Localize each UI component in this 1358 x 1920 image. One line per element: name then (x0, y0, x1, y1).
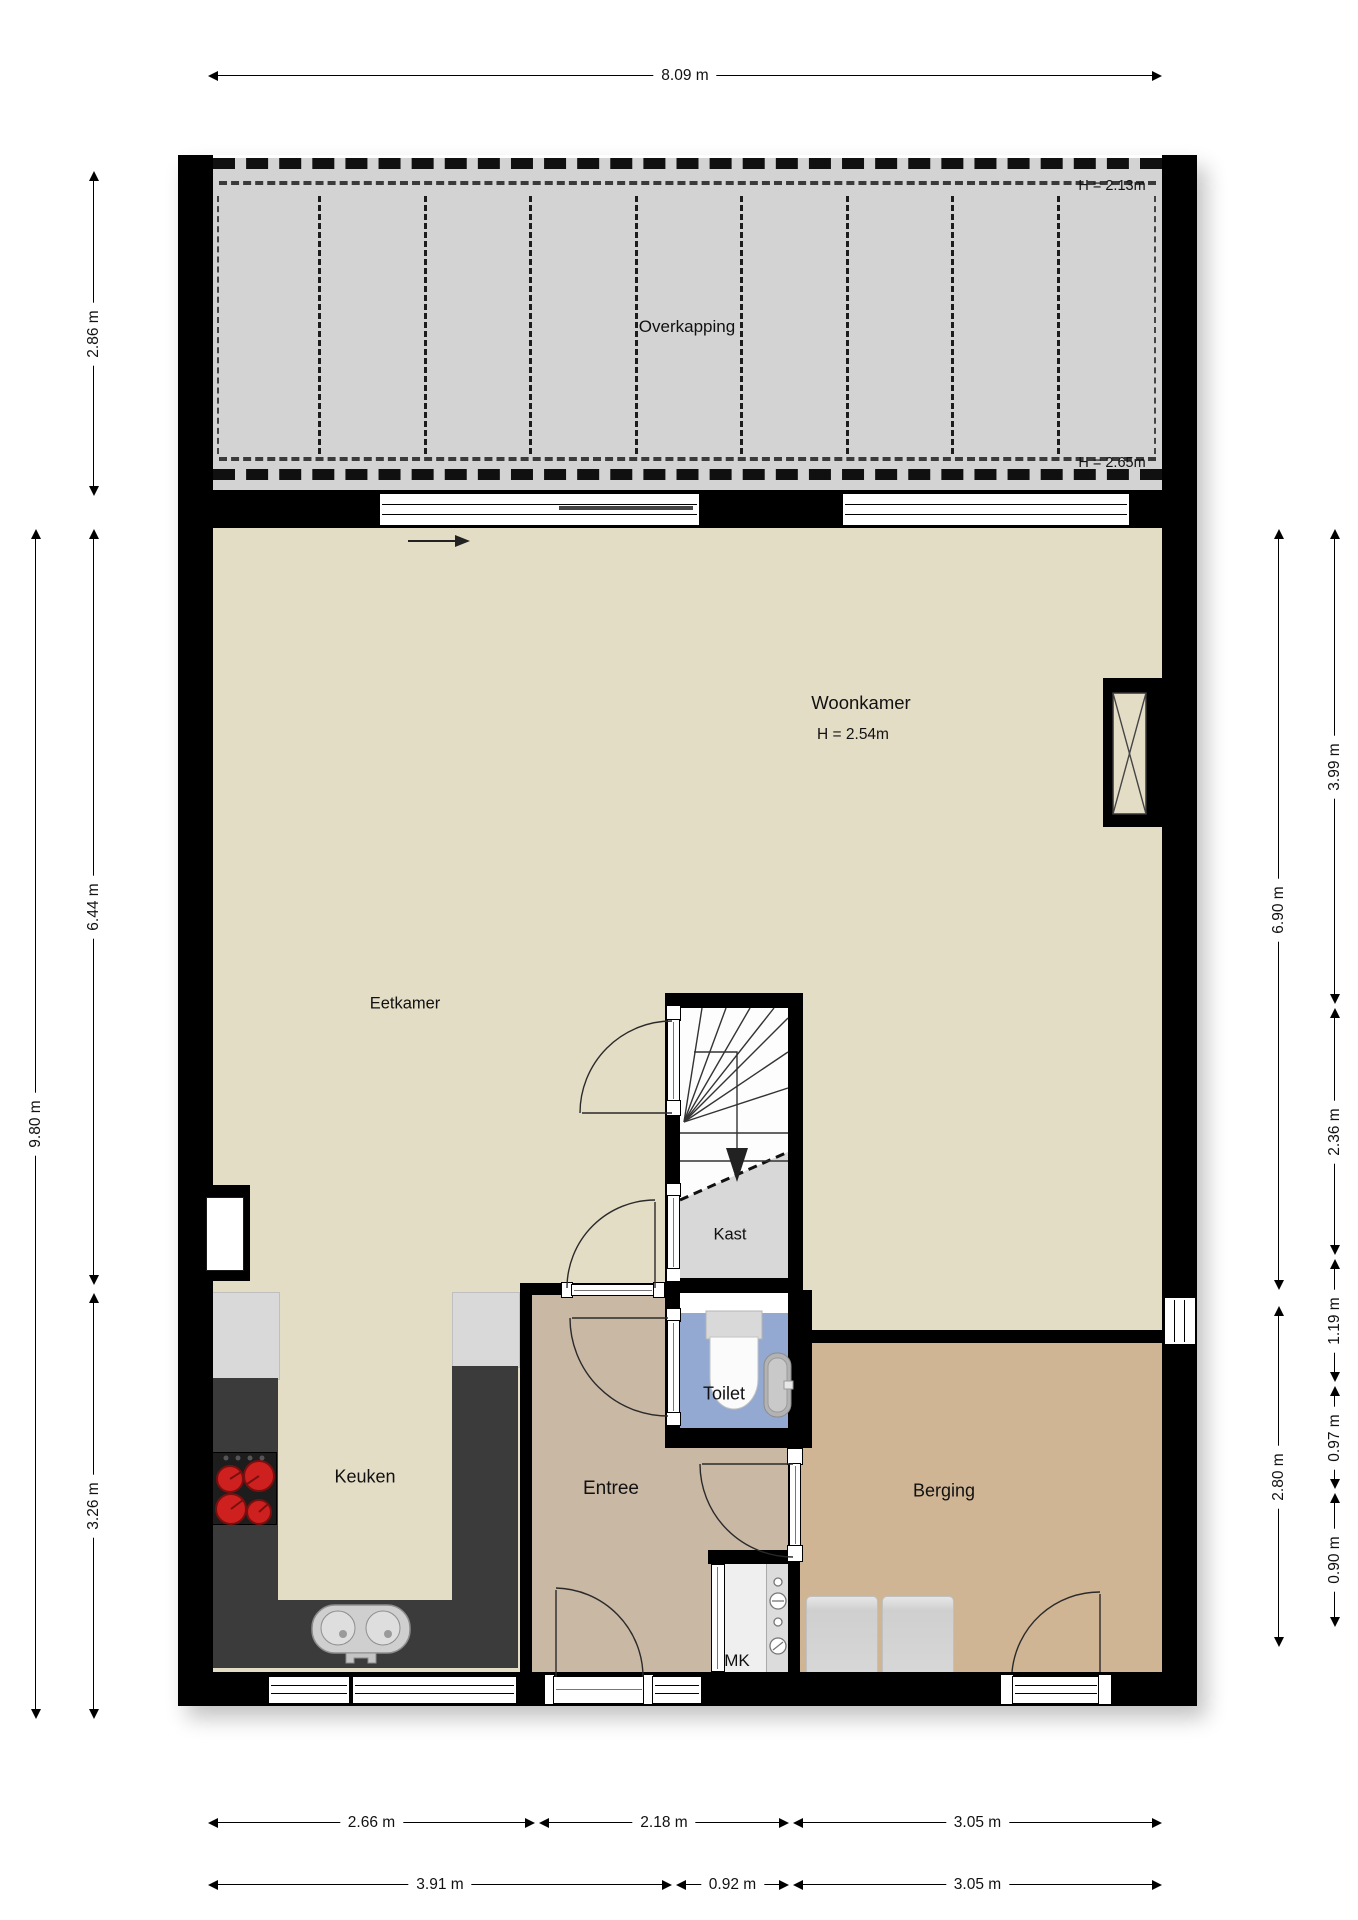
kast-door-frame-bottom (666, 1268, 681, 1282)
tall-cabinet (452, 1292, 520, 1368)
kast-door (667, 1195, 680, 1270)
dim-right-deur: 0.90 m (1334, 1495, 1335, 1625)
kitchen-counter-right (452, 1366, 518, 1600)
wall-stair-top (665, 993, 803, 1008)
front-door-sidelight (652, 1676, 702, 1704)
meterkast-door (711, 1564, 725, 1672)
dim-bottom-gang: 0.92 m (678, 1884, 787, 1885)
stairhall-door-frame-bottom (666, 1100, 681, 1116)
wall-meterkast-top (708, 1550, 790, 1564)
right-wall-window (1164, 1297, 1196, 1345)
sliding-door-window (379, 493, 700, 526)
stairhall-door (667, 1019, 680, 1102)
toilet-door (667, 1320, 680, 1414)
dim-bottom-berging: 3.05 m (795, 1822, 1160, 1823)
label-overkapping-height-front: H = 2.13m (1078, 178, 1145, 194)
floorplan-canvas: Overkapping H = 2.13m H = 2.65m Woonkame… (0, 0, 1358, 1920)
wall-stair-bottom (665, 1278, 803, 1293)
front-door (553, 1676, 645, 1704)
label-keuken: Keuken (334, 1467, 395, 1488)
entree-door-frame-right (653, 1282, 665, 1298)
label-overkapping: Overkapping (639, 317, 735, 337)
dim-left-woonkamer-depth: 6.44 m (93, 531, 94, 1283)
washing-machine (806, 1596, 878, 1674)
dim-left-overkapping-depth: 2.86 m (93, 173, 94, 494)
kitchen-window-right (352, 1676, 517, 1704)
dim-bottom-entree: 2.18 m (541, 1822, 787, 1823)
entree-door (571, 1284, 655, 1296)
label-eetkamer: Eetkamer (370, 995, 441, 1014)
dim-right-berging: 2.80 m (1278, 1308, 1279, 1645)
berging-inner-door-frame-bottom (787, 1545, 803, 1562)
livingroom-top-window (842, 493, 1130, 526)
overkapping-beam-3 (529, 196, 532, 454)
toilet-floor (680, 1313, 788, 1428)
fridge (208, 1292, 280, 1380)
overkapping-dots-top (219, 181, 1156, 185)
label-overkapping-height-back: H = 2.65m (1078, 455, 1145, 471)
label-toilet: Toilet (703, 1384, 745, 1405)
kitchen-counter-bottom (278, 1600, 518, 1668)
wall-keuken-entree (520, 1292, 532, 1672)
niche-right-window (1103, 678, 1197, 827)
berging-exterior-door (1012, 1676, 1100, 1704)
overkapping-beam-2 (424, 196, 427, 454)
eetkamer-left-window (206, 1197, 244, 1271)
dim-left-keuken-depth: 3.26 m (93, 1295, 94, 1717)
wall-left (178, 155, 213, 1706)
overkapping-beam-4 (635, 196, 638, 454)
overkapping-edge-bottom (213, 469, 1162, 480)
toilet-door-frame-bottom (666, 1412, 681, 1426)
label-kast: Kast (713, 1226, 746, 1245)
sliding-door-rail (559, 506, 693, 510)
overkapping-beam-6 (846, 196, 849, 454)
kitchen-window-left (268, 1676, 350, 1704)
berging-inner-door (789, 1463, 801, 1547)
overkapping-beam-5 (740, 196, 743, 454)
berging-door-frame-right (1098, 1674, 1112, 1705)
dim-right-gang: 0.97 m (1334, 1388, 1335, 1487)
overkapping-beam-7 (951, 196, 954, 454)
dim-bottom-keuken-total: 3.91 m (210, 1884, 670, 1885)
overkapping-beam-1 (318, 196, 321, 454)
dryer (882, 1596, 954, 1674)
dim-top-width: 8.09 m (210, 75, 1160, 76)
overkapping-edge-top (213, 158, 1162, 169)
label-woonkamer: Woonkamer (811, 692, 910, 714)
wall-right (1162, 155, 1197, 1706)
overkapping-post-line-right (1154, 196, 1156, 454)
wall-berging-top (788, 1330, 1162, 1343)
overkapping-post-line-left (217, 196, 219, 454)
label-berging: Berging (913, 1481, 975, 1502)
cooktop (212, 1452, 277, 1525)
dim-left-total-depth: 9.80 m (35, 531, 36, 1717)
dim-right-trap: 2.36 m (1334, 1010, 1335, 1253)
label-woonkamer-height: H = 2.54m (817, 726, 889, 744)
label-meterkast: MK (724, 1651, 750, 1671)
label-entree: Entree (583, 1478, 639, 1500)
dim-right-woonkamer-upper: 3.99 m (1334, 531, 1335, 1002)
wall-stair-right (788, 993, 803, 1290)
toilet-shelf (680, 1292, 788, 1314)
dim-bottom-berging-total: 3.05 m (795, 1884, 1160, 1885)
dim-right-woonkamer-total: 6.90 m (1278, 531, 1279, 1288)
overkapping-beam-8 (1057, 196, 1060, 454)
overkapping-dots-bottom (219, 457, 1156, 461)
dim-right-toilet: 1.19 m (1334, 1261, 1335, 1380)
dim-bottom-keuken: 2.66 m (210, 1822, 533, 1823)
